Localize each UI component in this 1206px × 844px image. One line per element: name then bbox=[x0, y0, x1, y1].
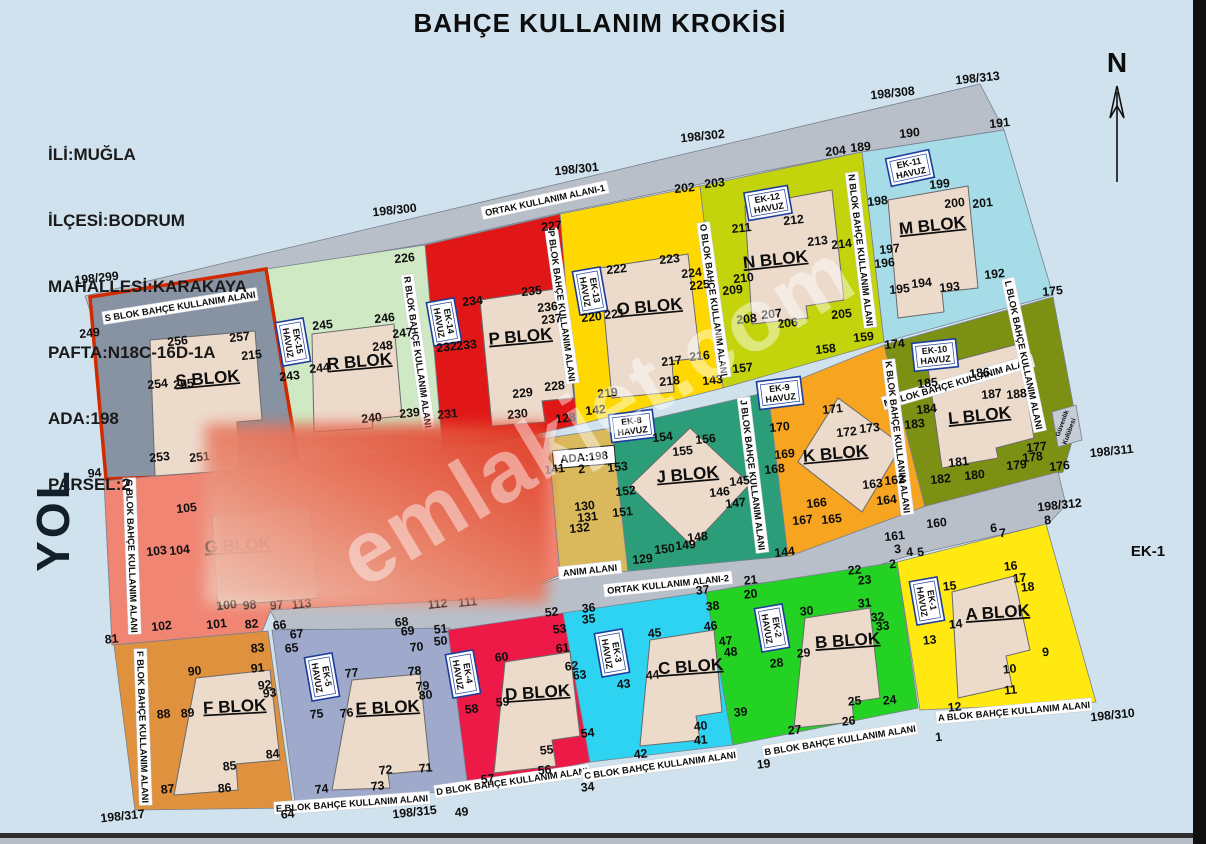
number-203: 203 bbox=[704, 175, 726, 191]
number-150: 150 bbox=[654, 541, 676, 557]
number-234: 234 bbox=[462, 293, 484, 309]
number-196: 196 bbox=[874, 255, 896, 271]
number-81: 81 bbox=[104, 631, 119, 646]
info-line-province: İLİ:MUĞLA bbox=[48, 144, 247, 166]
number-200: 200 bbox=[944, 195, 966, 211]
number-14: 14 bbox=[948, 616, 963, 631]
number-185: 185 bbox=[917, 375, 939, 391]
number-163: 163 bbox=[862, 476, 884, 492]
north-compass: N bbox=[1107, 47, 1127, 182]
number-199: 199 bbox=[929, 176, 951, 192]
number-89: 89 bbox=[180, 705, 195, 720]
number-198/310: 198/310 bbox=[1090, 706, 1136, 725]
number-38: 38 bbox=[705, 598, 720, 613]
info-line-district: İLÇESİ:BODRUM bbox=[48, 210, 247, 232]
compass-n-label: N bbox=[1107, 47, 1127, 78]
number-84: 84 bbox=[265, 746, 280, 761]
number-48: 48 bbox=[723, 644, 738, 659]
number-144: 144 bbox=[774, 544, 796, 560]
number-85: 85 bbox=[222, 758, 237, 773]
number-194: 194 bbox=[911, 275, 933, 291]
number-172: 172 bbox=[836, 424, 858, 440]
number-149: 149 bbox=[675, 537, 697, 553]
number-73: 73 bbox=[370, 778, 385, 793]
number-187: 187 bbox=[981, 386, 1003, 402]
number-56: 56 bbox=[537, 762, 552, 777]
number-158: 158 bbox=[815, 341, 837, 357]
number-82: 82 bbox=[244, 616, 259, 631]
number-182: 182 bbox=[930, 471, 952, 487]
number-74: 74 bbox=[314, 781, 329, 796]
number-25: 25 bbox=[847, 693, 862, 708]
number-198/308: 198/308 bbox=[870, 84, 916, 103]
number-198/317: 198/317 bbox=[100, 807, 146, 826]
number-23: 23 bbox=[857, 572, 872, 587]
number-176: 176 bbox=[1049, 458, 1071, 474]
number-129: 129 bbox=[632, 551, 654, 567]
number-34: 34 bbox=[580, 779, 595, 794]
number-53: 53 bbox=[552, 621, 567, 636]
number-202: 202 bbox=[674, 180, 696, 196]
number-161: 161 bbox=[884, 528, 906, 544]
number-180: 180 bbox=[964, 467, 986, 483]
number-83: 83 bbox=[250, 640, 265, 655]
number-10: 10 bbox=[1002, 661, 1017, 676]
number-31: 31 bbox=[857, 595, 872, 610]
number-204: 204 bbox=[825, 143, 847, 159]
number-165: 165 bbox=[821, 511, 843, 527]
number-169: 169 bbox=[774, 446, 796, 462]
number-91: 91 bbox=[250, 660, 265, 675]
number-39: 39 bbox=[733, 704, 748, 719]
site-plan-page: ORTAK KULLANIM ALANI-1S BLOK BAHÇE KULLA… bbox=[0, 0, 1206, 844]
number-1: 1 bbox=[934, 730, 942, 745]
number-191: 191 bbox=[989, 115, 1011, 131]
number-19: 19 bbox=[756, 756, 771, 771]
number-132: 132 bbox=[569, 520, 591, 536]
number-171: 171 bbox=[822, 401, 844, 417]
number-166: 166 bbox=[806, 495, 828, 511]
number-26: 26 bbox=[841, 713, 856, 728]
number-71: 71 bbox=[418, 760, 433, 775]
number-87: 87 bbox=[160, 781, 175, 796]
number-243: 243 bbox=[279, 368, 301, 384]
number-188: 188 bbox=[1006, 386, 1028, 402]
number-156: 156 bbox=[695, 431, 717, 447]
number-246: 246 bbox=[374, 310, 396, 326]
page-title: BAHÇE KULLANIM KROKİSİ bbox=[300, 8, 900, 39]
number-78: 78 bbox=[407, 663, 422, 678]
label-e-blok: E BLOK bbox=[355, 696, 421, 718]
number-15: 15 bbox=[942, 578, 957, 593]
number-247: 247 bbox=[392, 325, 414, 341]
number-184: 184 bbox=[916, 401, 938, 417]
number-88: 88 bbox=[156, 706, 171, 721]
number-57: 57 bbox=[480, 771, 495, 786]
number-168: 168 bbox=[764, 461, 786, 477]
info-line-sheet: PAFTA:N18C-16D-1A bbox=[48, 342, 247, 364]
number-192: 192 bbox=[984, 266, 1006, 282]
number-223: 223 bbox=[659, 251, 681, 267]
number-12: 12 bbox=[947, 699, 962, 714]
number-67: 67 bbox=[289, 626, 304, 641]
road-label: YOL bbox=[0, 475, 118, 565]
number-240: 240 bbox=[361, 410, 383, 426]
number-201: 201 bbox=[972, 195, 994, 211]
pool-ek-9: EK-9HAVUZ bbox=[756, 376, 803, 409]
number-75: 75 bbox=[309, 706, 324, 721]
number-198/313: 198/313 bbox=[955, 69, 1001, 88]
number-170: 170 bbox=[769, 419, 791, 435]
number-102: 102 bbox=[151, 618, 173, 634]
number-18: 18 bbox=[1020, 579, 1035, 594]
number-173: 173 bbox=[859, 420, 881, 436]
number-193: 193 bbox=[939, 279, 961, 295]
number-80: 80 bbox=[418, 687, 433, 702]
number-167: 167 bbox=[792, 512, 814, 528]
number-181: 181 bbox=[948, 454, 970, 470]
number-40: 40 bbox=[693, 718, 708, 733]
number-104: 104 bbox=[169, 542, 191, 558]
number-147: 147 bbox=[725, 495, 747, 511]
number-41: 41 bbox=[693, 732, 708, 747]
number-49: 49 bbox=[454, 804, 469, 819]
number-90: 90 bbox=[187, 663, 202, 678]
number-189: 189 bbox=[850, 139, 872, 155]
number-69: 69 bbox=[400, 623, 415, 638]
number-145: 145 bbox=[729, 473, 751, 489]
number-155: 155 bbox=[672, 443, 694, 459]
number-152: 152 bbox=[615, 483, 637, 499]
number-54: 54 bbox=[580, 725, 595, 740]
number-227: 227 bbox=[541, 218, 563, 234]
number-179: 179 bbox=[1006, 457, 1028, 473]
scan-edge-right bbox=[1193, 0, 1206, 844]
number-195: 195 bbox=[889, 281, 911, 297]
number-174: 174 bbox=[884, 336, 906, 352]
number-42: 42 bbox=[633, 746, 648, 761]
number-159: 159 bbox=[853, 329, 875, 345]
number-65: 65 bbox=[284, 640, 299, 655]
scan-edge-bottom bbox=[0, 838, 1193, 844]
text-ek-1: EK-1 bbox=[1131, 543, 1165, 560]
number-101: 101 bbox=[206, 616, 228, 632]
number-11: 11 bbox=[1003, 682, 1018, 697]
number-220: 220 bbox=[581, 309, 603, 325]
number-245: 245 bbox=[312, 317, 334, 333]
number-29: 29 bbox=[796, 645, 811, 660]
number-21: 21 bbox=[743, 572, 758, 587]
number-58: 58 bbox=[464, 701, 479, 716]
number-198: 198 bbox=[867, 193, 889, 209]
number-198/311: 198/311 bbox=[1089, 442, 1134, 461]
number-61: 61 bbox=[555, 640, 570, 655]
number-72: 72 bbox=[378, 762, 393, 777]
number-164: 164 bbox=[876, 492, 898, 508]
number-64: 64 bbox=[280, 806, 295, 821]
number-66: 66 bbox=[272, 617, 287, 632]
label-f-blok: F BLOK bbox=[203, 695, 268, 717]
number-239: 239 bbox=[399, 405, 421, 421]
number-55: 55 bbox=[539, 742, 554, 757]
number-175: 175 bbox=[1042, 283, 1064, 299]
number-24: 24 bbox=[882, 692, 897, 707]
number-231: 231 bbox=[437, 406, 459, 422]
info-line-ada: ADA:198 bbox=[48, 408, 247, 430]
number-222: 222 bbox=[606, 261, 628, 277]
number-86: 86 bbox=[217, 780, 232, 795]
number-52: 52 bbox=[544, 604, 559, 619]
number-35: 35 bbox=[581, 611, 596, 626]
number-211: 211 bbox=[731, 220, 752, 236]
number-46: 46 bbox=[703, 618, 718, 633]
number-198/302: 198/302 bbox=[680, 127, 726, 146]
number-232: 232 bbox=[436, 339, 458, 355]
number-63: 63 bbox=[572, 667, 587, 682]
number-190: 190 bbox=[899, 125, 921, 141]
number-151: 151 bbox=[612, 504, 634, 520]
number-212: 212 bbox=[783, 212, 805, 228]
number-28: 28 bbox=[769, 655, 784, 670]
number-226: 226 bbox=[394, 250, 416, 266]
number-50: 50 bbox=[433, 633, 448, 648]
pool-ek-10: EK-10HAVUZ bbox=[912, 339, 959, 371]
info-line-neighborhood: MAHALLESİ:KARAKAYA bbox=[48, 276, 247, 298]
number-103: 103 bbox=[146, 543, 168, 559]
number-13: 13 bbox=[922, 632, 937, 647]
number-162: 162 bbox=[884, 472, 906, 488]
number-235: 235 bbox=[521, 283, 543, 299]
number-233: 233 bbox=[456, 337, 478, 353]
number-77: 77 bbox=[344, 665, 359, 680]
number-20: 20 bbox=[743, 586, 758, 601]
number-30: 30 bbox=[799, 603, 814, 618]
number-198/300: 198/300 bbox=[372, 201, 418, 220]
number-45: 45 bbox=[647, 625, 662, 640]
number-27: 27 bbox=[787, 722, 802, 737]
number-186: 186 bbox=[969, 365, 991, 381]
number-76: 76 bbox=[339, 705, 354, 720]
number-37: 37 bbox=[695, 582, 710, 597]
number-160: 160 bbox=[926, 515, 948, 531]
number-183: 183 bbox=[904, 416, 926, 432]
number-70: 70 bbox=[409, 639, 424, 654]
number-60: 60 bbox=[494, 649, 509, 664]
number-43: 43 bbox=[616, 676, 631, 691]
